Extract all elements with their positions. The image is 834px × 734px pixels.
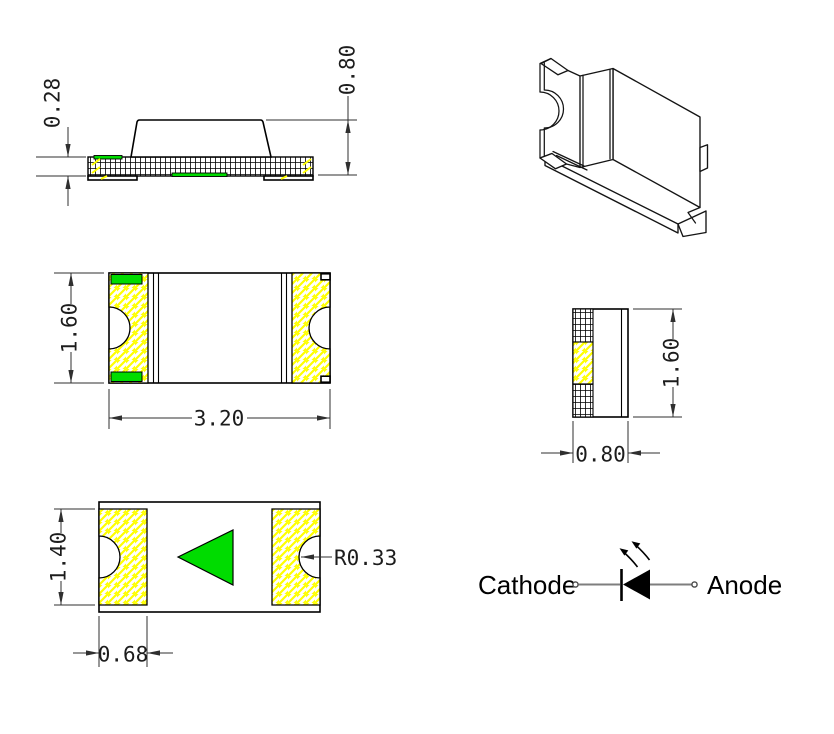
iso-side-face bbox=[613, 69, 700, 208]
pad-corner-cut-bottom bbox=[321, 376, 330, 382]
terminal-step-left bbox=[88, 176, 137, 180]
anode-label: Anode bbox=[707, 570, 782, 600]
iso-anode-tab bbox=[700, 145, 708, 172]
dim-label-pad-width: 0.68 bbox=[98, 642, 149, 666]
green-plating-strip-bottom bbox=[172, 173, 227, 177]
diode-triangle bbox=[623, 570, 650, 600]
cathode-terminal-circle bbox=[573, 582, 578, 587]
iso-cap-notch-inner-arc bbox=[545, 90, 564, 128]
dim-label-body-height: 1.60 bbox=[659, 338, 683, 389]
dim-label-overall-height: 0.80 bbox=[335, 45, 359, 96]
bottom-view: 1.40 0.68 R0.33 bbox=[46, 502, 397, 667]
cathode-label: Cathode bbox=[478, 570, 576, 600]
end-view-terminal-top bbox=[573, 309, 593, 342]
iso-end-face bbox=[580, 69, 613, 168]
iso-cap-connect-lines bbox=[567, 71, 581, 168]
dim-label-body-width: 1.60 bbox=[57, 303, 81, 354]
green-polarity-pad-bottom bbox=[111, 372, 142, 382]
iso-base-plate-end bbox=[678, 211, 706, 237]
ext-lines-028 bbox=[36, 157, 86, 176]
dim-label-body-thickness: 0.80 bbox=[575, 442, 626, 466]
lens-profile bbox=[131, 120, 271, 157]
dim-label-castellation-radius: R0.33 bbox=[334, 546, 397, 570]
dim-label-substrate-thickness: 0.28 bbox=[40, 78, 64, 129]
terminal-step-right bbox=[264, 176, 313, 180]
led-outline-drawing: 0.28 0.80 bbox=[0, 0, 834, 734]
green-plating-strip-top bbox=[94, 156, 122, 160]
end-view-pad-middle bbox=[573, 342, 593, 384]
dim-label-pad-span: 1.40 bbox=[46, 532, 70, 583]
pad-corner-cut-top bbox=[321, 274, 330, 280]
end-view-terminal-bottom bbox=[573, 384, 593, 417]
side-view: 0.28 0.80 bbox=[36, 45, 359, 206]
drawing-sheet: 0.28 0.80 bbox=[0, 0, 834, 734]
anode-terminal-circle bbox=[692, 582, 697, 587]
light-emission-arrows bbox=[620, 541, 650, 567]
top-view: 1.60 3.20 bbox=[54, 273, 330, 430]
dim-label-body-length: 3.20 bbox=[194, 406, 245, 430]
green-polarity-pad-top bbox=[111, 275, 142, 285]
iso-view bbox=[540, 59, 708, 237]
end-view: 1.60 0.80 bbox=[541, 309, 683, 466]
polarity-schematic: Cathode Anode bbox=[478, 541, 782, 601]
